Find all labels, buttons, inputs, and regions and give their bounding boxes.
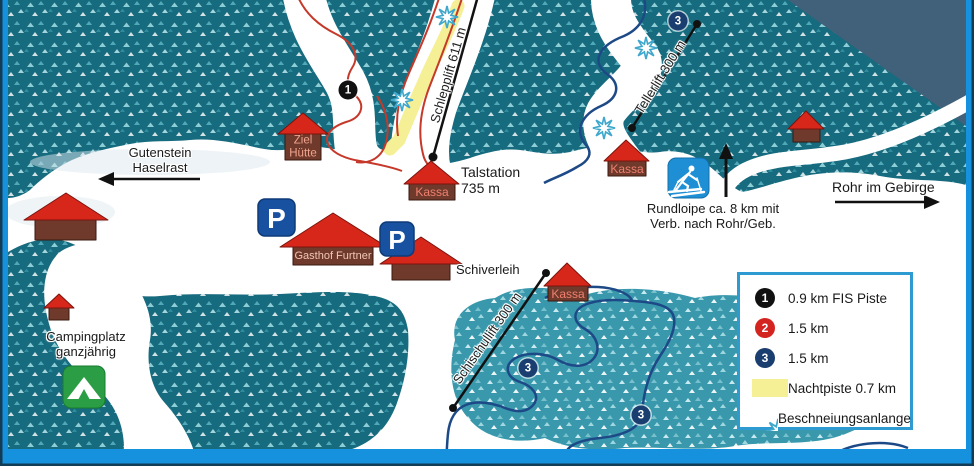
legend-label: 1.5 km bbox=[788, 321, 829, 336]
legend-label: Nachtpiste 0.7 km bbox=[788, 381, 896, 396]
svg-text:P: P bbox=[267, 203, 286, 234]
legend-item-run1: 1 0.9 km FIS Piste bbox=[752, 283, 910, 313]
legend-label: 0.9 km FIS Piste bbox=[788, 291, 887, 306]
run2-marker: 2 bbox=[755, 318, 775, 338]
legend-box: 1 0.9 km FIS Piste 2 1.5 km 3 1.5 km Nac… bbox=[737, 272, 913, 430]
legend-item-run3: 3 1.5 km bbox=[752, 343, 910, 373]
legend-label: 1.5 km bbox=[788, 351, 829, 366]
legend-label: Beschneiungsanlange bbox=[778, 411, 911, 426]
nachtpiste-swatch bbox=[752, 379, 788, 397]
legend-item-run2: 2 1.5 km bbox=[752, 313, 910, 343]
parking-icon: P bbox=[258, 199, 295, 236]
run1-marker: 1 bbox=[755, 288, 775, 308]
snow-shading bbox=[30, 149, 270, 175]
svg-text:P: P bbox=[388, 225, 405, 255]
parking-icon: P bbox=[380, 222, 414, 256]
campsite-icon bbox=[63, 366, 105, 408]
legend-item-snowmaking: Beschneiungsanlange bbox=[752, 403, 910, 433]
piste-map: P P bbox=[0, 0, 974, 466]
legend-item-nachtpiste: Nachtpiste 0.7 km bbox=[752, 373, 910, 403]
run3-marker: 3 bbox=[755, 348, 775, 368]
snowflake-icon bbox=[752, 405, 778, 431]
cross-country-skier-icon bbox=[668, 158, 709, 198]
